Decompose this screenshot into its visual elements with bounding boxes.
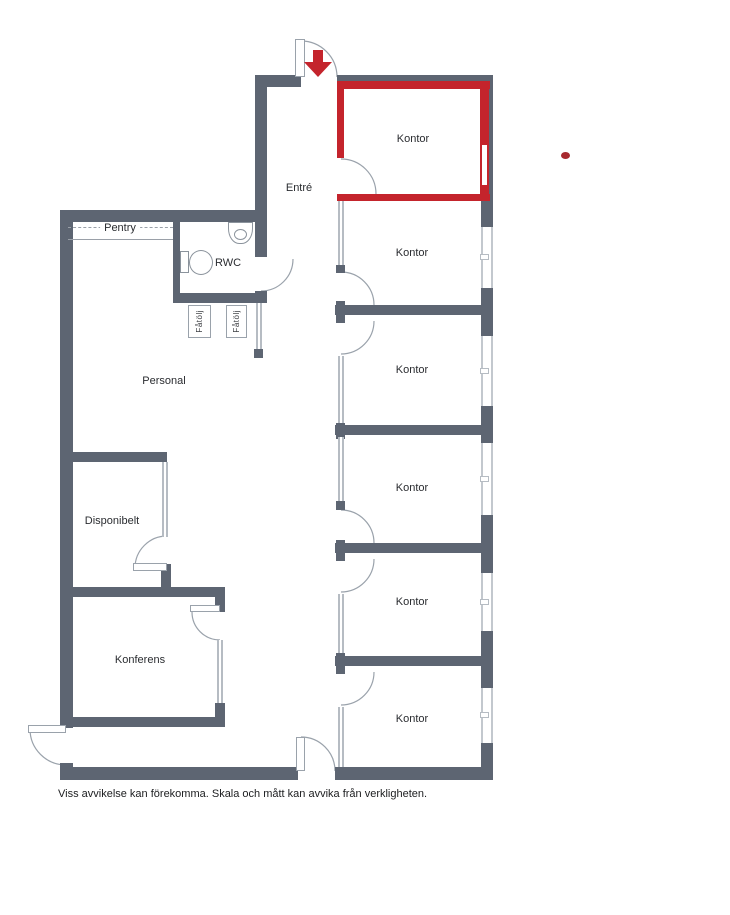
glass-partition — [162, 462, 168, 537]
room-label-kontor-5: Kontor — [396, 596, 428, 608]
wall-segment — [60, 587, 225, 597]
wall-segment — [335, 656, 493, 666]
wall-cap — [336, 301, 345, 323]
wall-cap — [336, 265, 345, 273]
wall-segment — [60, 210, 267, 222]
highlight-outline-right — [480, 81, 489, 145]
glass-partition — [338, 437, 344, 503]
room-label-kontor-1: Kontor — [397, 133, 429, 145]
wall-cap — [336, 653, 345, 674]
door-leaf — [190, 605, 220, 612]
armchair-label: Fåtölj — [232, 310, 241, 333]
room-label-kontor-2: Kontor — [396, 247, 428, 259]
window-tick — [480, 476, 489, 482]
counter-line — [68, 239, 173, 240]
armchair-label: Fåtölj — [195, 310, 204, 333]
wall-segment — [335, 305, 493, 315]
door-swing-arc-rwc — [261, 259, 293, 291]
glass-partition — [338, 707, 344, 767]
wall-segment — [60, 717, 225, 727]
room-label-kontor-6: Kontor — [396, 713, 428, 725]
room-label-entre: Entré — [286, 182, 312, 194]
window-tick — [480, 599, 489, 605]
window-tick — [480, 254, 489, 260]
wall-segment — [173, 293, 267, 303]
wall-segment — [255, 75, 267, 217]
door-swing-arc-corridor-bottom — [301, 737, 335, 771]
room-label-kontor-4: Kontor — [396, 482, 428, 494]
wall-segment — [335, 425, 493, 435]
floor-plan: Fåtölj Fåtölj Kontor Kontor Kontor Konto… — [0, 0, 730, 915]
armchair-symbol: Fåtölj — [188, 305, 211, 338]
glass-partition — [217, 640, 223, 707]
window-tick — [480, 712, 489, 718]
door-leaf — [296, 737, 305, 771]
toilet-icon — [189, 250, 213, 275]
armchair-symbol: Fåtölj — [226, 305, 247, 338]
room-label-disponibelt: Disponibelt — [85, 515, 139, 527]
wall-segment — [60, 767, 298, 780]
glass-partition — [338, 594, 344, 656]
window-tick — [480, 368, 489, 374]
door-swing-arc-office-6 — [341, 672, 374, 705]
wall-segment — [173, 210, 180, 303]
room-label-konferens: Konferens — [115, 654, 165, 666]
wall-cap — [254, 349, 263, 358]
wall-cap — [336, 540, 345, 561]
door-swing-arc-office-3 — [341, 321, 374, 354]
highlighted-window — [480, 145, 489, 185]
room-label-rwc: RWC — [215, 257, 241, 269]
wall-segment — [60, 210, 73, 728]
wall-cap — [336, 501, 345, 510]
door-leaf — [133, 563, 167, 571]
highlight-outline-bottom — [337, 194, 490, 201]
toilet-icon — [180, 251, 189, 273]
disclaimer-caption: Viss avvikelse kan förekomma. Skala och … — [58, 788, 427, 800]
door-swing-arc-office-1 — [341, 159, 376, 194]
glass-partition — [338, 356, 344, 425]
wall-segment — [481, 201, 493, 227]
door-swing-arc-office-2 — [341, 272, 374, 305]
highlight-marker-dot — [561, 152, 570, 159]
door-swing-arc-office-5 — [341, 559, 374, 592]
room-label-pentry: Pentry — [100, 222, 140, 234]
glass-partition — [256, 303, 262, 353]
entrance-arrow-icon — [304, 62, 332, 77]
wall-segment — [481, 743, 493, 780]
highlight-outline-right — [480, 185, 489, 201]
wall-segment — [255, 217, 267, 257]
highlight-outline-top — [337, 81, 490, 89]
room-label-kontor-3: Kontor — [396, 364, 428, 376]
door-swing-arc-konferens — [192, 612, 220, 640]
door-leaf — [28, 725, 66, 733]
sink-icon — [234, 229, 247, 240]
wall-segment — [335, 767, 493, 780]
highlight-outline-left — [337, 81, 344, 158]
room-label-personal: Personal — [142, 375, 185, 387]
door-swing-arc-exit-left — [30, 729, 66, 765]
wall-segment — [60, 452, 167, 462]
wall-segment — [335, 543, 493, 553]
glass-partition — [338, 201, 344, 267]
door-swing-arc-office-4 — [341, 510, 374, 543]
